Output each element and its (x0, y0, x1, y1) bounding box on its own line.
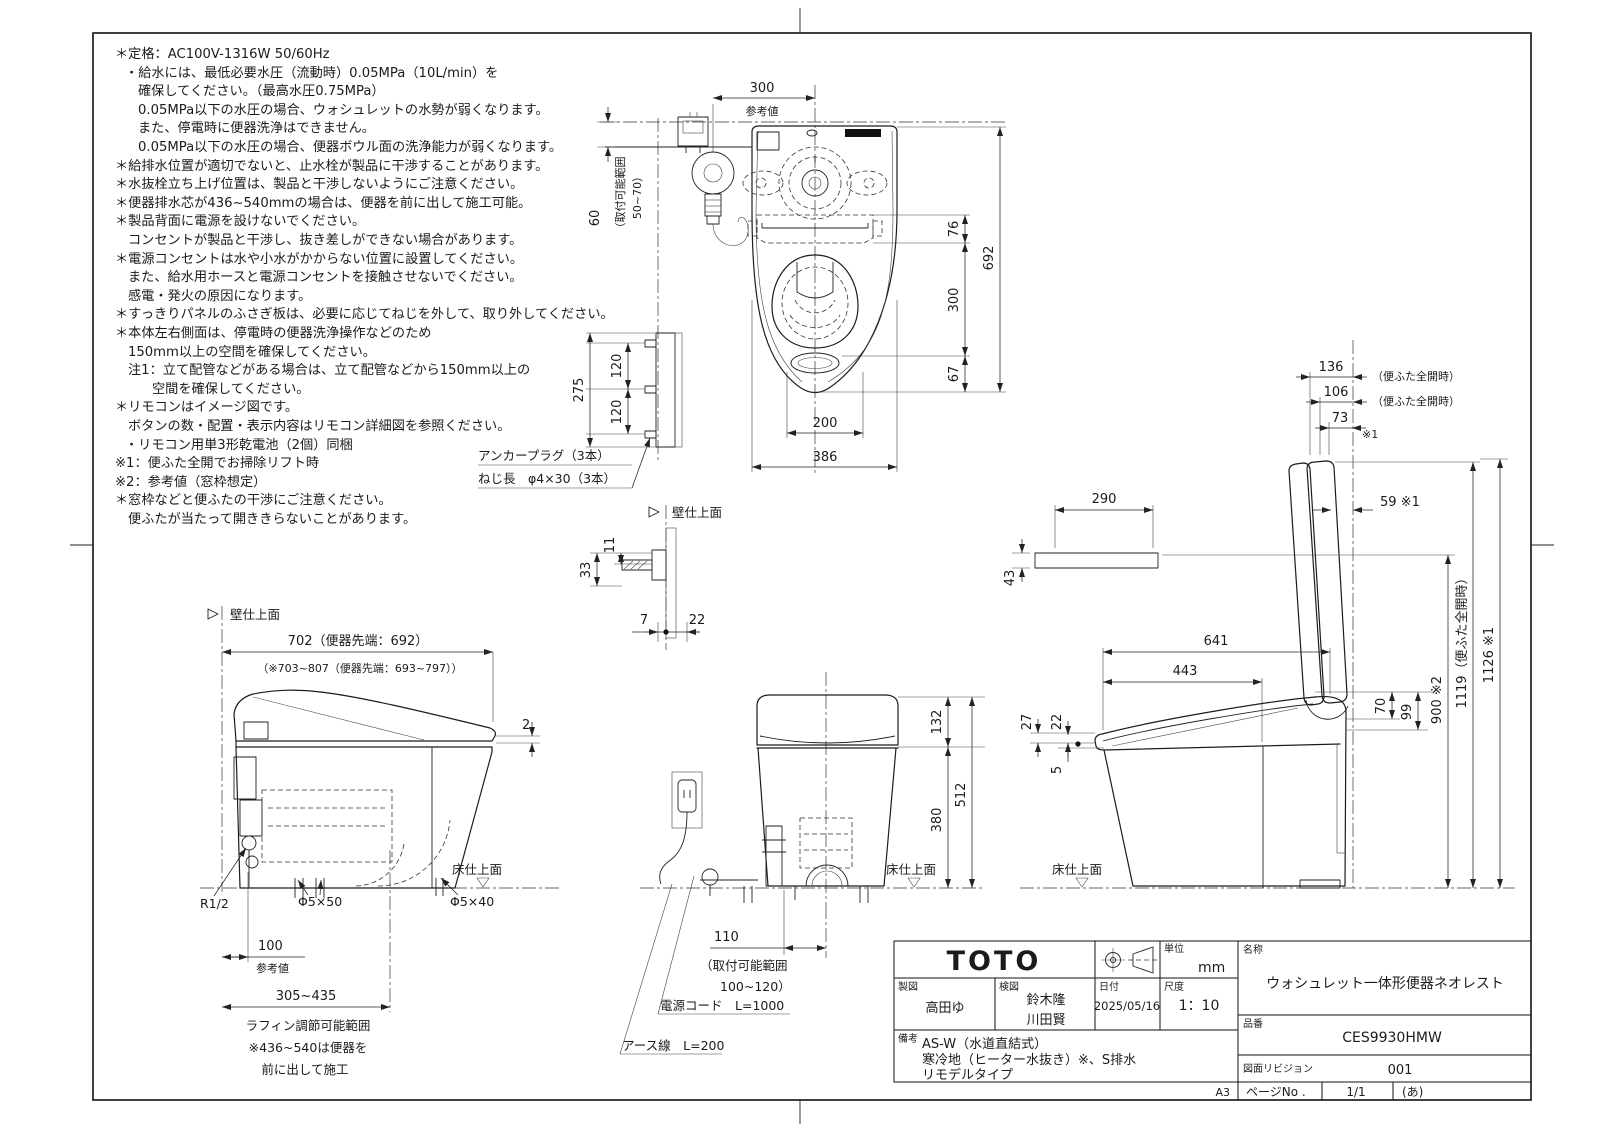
checked-value-1: 鈴木隆 (1026, 993, 1065, 1008)
power-cord-label: 電源コード L=1000 (660, 998, 784, 1013)
dim-386: 386 (813, 450, 838, 465)
dim-200: 200 (813, 416, 838, 431)
anchor-note-2: ねじ長 φ4×30（3本） (478, 471, 616, 486)
checked-value-2: 川田賢 (1026, 1013, 1065, 1028)
note-line: ＊製品背面に電源を設けないでください。 (115, 213, 365, 229)
drawing-sheet: ＊定格：AC100V-1316W 50/60Hz ・給水には、最低必要水圧（流動… (0, 0, 1600, 1131)
dim-100: 100 (258, 939, 283, 954)
part-value: CES9930HMW (1342, 1030, 1442, 1046)
wall-face-label-left: 壁仕上面 (230, 607, 280, 622)
dim-380: 380 (930, 808, 945, 833)
dim-900: 900 ※2 (1430, 676, 1445, 724)
note-line: ＊便器排水芯が436~540mmの場合は、便器を前に出して施工可能。 (115, 194, 531, 211)
wall-face-label: 壁仕上面 (672, 505, 722, 520)
dim-106: 106 (1324, 385, 1349, 400)
dim-73-note: ※1 (1362, 428, 1378, 441)
dim-11: 11 (603, 537, 618, 554)
dim-692: 692 (982, 246, 997, 271)
dim-100-note: 参考値 (256, 961, 289, 975)
note-line: ＊窓枠などと便ふたの干渉にご注意ください。 (115, 491, 392, 508)
dim-60-range-2: 50~70） (631, 171, 644, 219)
note-line: ＊本体左右側面は、停電時の便器洗浄操作などのため (115, 324, 432, 341)
toilet-right-profile (1095, 697, 1346, 888)
remarks-line-1: AS-W（水道直結式） (922, 1037, 1047, 1052)
dim-60: 60 (588, 210, 603, 227)
name-value: ウォシュレット一体形便器ネオレスト (1266, 976, 1504, 992)
note-line: ・リモコン用単3形乾電池（2個）同梱 (125, 437, 353, 453)
dim-110: 110 (714, 930, 739, 945)
note-line: ＊定格：AC100V-1316W 50/60Hz (115, 46, 330, 62)
dim-73: 73 (1332, 411, 1349, 426)
note-line: 空間を確保してください。 (152, 381, 309, 397)
dim-33: 33 (579, 562, 594, 579)
title-block: TOTO 単位 mm 製図 高田ゆ 検図 鈴木隆 川田賢 日付 2025/05/… (894, 941, 1531, 1100)
note-line: 0.05MPa以下の水圧の場合、ウォシュレットの水勢が弱くなります。 (138, 102, 549, 118)
dim-120-b: 120 (610, 400, 625, 425)
page-label: ページNo . (1246, 1085, 1306, 1099)
remarks-line-3: リモデルタイプ (922, 1067, 1013, 1083)
dim-641: 641 (1204, 634, 1229, 649)
note-line: 便ふたが当たって開ききらないことがあります。 (128, 511, 416, 527)
front-view-plumbing (660, 772, 868, 903)
projection-symbol-icon (1101, 947, 1157, 973)
floor-label-front: 床仕上面 (886, 862, 936, 877)
note-line: また、停電時に便器洗浄はできません。 (138, 119, 375, 136)
note-line: 確保してください。（最高水圧0.75MPa） (138, 82, 385, 99)
anchor-note-1: アンカープラグ（3本） (478, 448, 610, 463)
dim-300-note: 参考値 (746, 104, 779, 118)
note-line: ＊すっきりパネルのふさぎ板は、必要に応じてねじを外して、取り外してください。 (115, 306, 614, 322)
right-side-view: 床仕上面 136 （便ふた全開時） 106 （便ふた全開時） 73 ※1 59 … (1003, 340, 1515, 888)
note-line: 150mm以上の空間を確保してください。 (128, 344, 376, 360)
dim-300b: 300 (947, 288, 962, 313)
scale-label: 尺度 (1164, 980, 1184, 993)
note-line: ＊リモコンはイメージ図です。 (115, 399, 298, 415)
note-line: また、給水用ホースと電源コンセントを接触させないでください。 (128, 268, 523, 285)
note-line: ・給水には、最低必要水圧（流動時）0.05MPa（10L/min）を (125, 65, 498, 81)
dim-27: 27 (1020, 714, 1035, 731)
dim-67: 67 (947, 366, 962, 383)
scale-value: 1：10 (1179, 998, 1220, 1014)
toilet-plan-outline (752, 126, 897, 393)
dim-136: 136 (1319, 360, 1344, 375)
dim-702: 702（便器先端：692） (288, 634, 429, 649)
page-value: 1/1 (1346, 1085, 1365, 1099)
r12-label: R1/2 (200, 896, 229, 911)
rough-in-note-3: 前に出して施工 (261, 1062, 348, 1077)
checked-label: 検図 (999, 980, 1019, 993)
dim-702-alt: （※703~807（便器先端：693~797）） (257, 662, 462, 675)
dim-1119: 1119（便ふた全開時） (1454, 571, 1470, 708)
note-line: ※1：便ふた全開でお掃除リフト時 (115, 454, 319, 471)
dim-132: 132 (930, 710, 945, 735)
revision-value: 001 (1388, 1063, 1413, 1078)
note-line: ボタンの数・配置・表示内容はリモコン詳細図を参照ください。 (128, 417, 510, 434)
date-value: 2025/05/16 (1094, 999, 1160, 1013)
dim-300: 300 (750, 81, 775, 96)
earth-wire-label: アース線 L=200 (622, 1038, 724, 1053)
note-line: ※2：参考値（窓枠想定） (115, 473, 266, 490)
toilet-front-outline (757, 695, 898, 886)
revision-label: 図面リビジョン (1243, 1063, 1313, 1075)
dim-5: 5 (1050, 766, 1065, 774)
remote-bracket-detail: 120 120 275 アンカープラグ（3本） ねじ長 φ4×30（3本） (478, 333, 682, 488)
date-label: 日付 (1099, 980, 1119, 993)
drawn-value: 高田ゆ (925, 1000, 964, 1016)
floor-label-right: 床仕上面 (1052, 862, 1102, 877)
shutoff-valve (692, 152, 748, 246)
unit-value: mm (1198, 960, 1225, 976)
wall-section-detail: 壁仕上面 33 11 7 22 (579, 505, 722, 650)
dim-59: 59 ※1 (1380, 495, 1420, 510)
dim-305-435: 305~435 (276, 989, 337, 1004)
note-line: ＊給排水位置が適切でないと、止水栓が製品に干渉することがあります。 (115, 157, 548, 174)
dim-60-range-1: （取付可能範囲 (613, 157, 627, 234)
open-lid (1289, 461, 1348, 719)
note-line: 感電・発火の原因になります。 (128, 287, 311, 304)
dim-110-range-1: （取付可能範囲 (700, 958, 788, 973)
rough-in-note-1: ラフィン調節可能範囲 (246, 1018, 371, 1033)
cad-drawing: ＊定格：AC100V-1316W 50/60Hz ・給水には、最低必要水圧（流動… (0, 0, 1600, 1131)
left-side-view: 壁仕上面 702（便器先端：692） （※703~807（便器先端：693~79… (200, 606, 560, 1077)
dim-70: 70 (1374, 698, 1389, 715)
screw-50-label: Φ5×50 (298, 894, 342, 909)
dim-290: 290 (1092, 492, 1117, 507)
floor-label-left: 床仕上面 (452, 862, 502, 877)
note-line: 注1：立て配管などがある場合は、立て配管などから150mm以上の (128, 362, 530, 378)
dim-275: 275 (572, 378, 587, 403)
dim-1126: 1126 ※1 (1482, 627, 1497, 683)
screw-40-label: Φ5×40 (450, 894, 494, 909)
name-label: 名称 (1243, 943, 1263, 956)
drawn-label: 製図 (898, 980, 918, 993)
remarks-line-2: 寒冷地（ヒーター水抜き）※、S排水 (922, 1052, 1136, 1068)
dim-22r: 22 (1050, 714, 1065, 731)
dim-2: 2 (522, 718, 530, 733)
dim-106-note: （便ふた全開時） (1372, 394, 1460, 408)
toilet-left-profile (234, 690, 495, 888)
dim-99: 99 (1400, 704, 1415, 721)
note-line: 0.05MPa以下の水圧の場合、便器ボウル面の洗浄能力が弱くなります。 (138, 139, 562, 155)
note-line: ＊電源コンセントは水や小水がかからない位置に設置してください。 (115, 251, 523, 267)
dim-76: 76 (947, 221, 962, 238)
note-line: コンセントが製品と干渉し、抜き差しができない場合があります。 (128, 232, 522, 248)
left-view-plumbing (234, 757, 450, 898)
window-sill-detail: 290 43 (1003, 492, 1158, 586)
page-note: (あ) (1402, 1085, 1423, 1099)
paper-size: A3 (1215, 1086, 1230, 1099)
toto-logo: TOTO (947, 946, 1042, 977)
dim-22: 22 (689, 613, 706, 628)
dim-443: 443 (1173, 664, 1198, 679)
dim-110-range-2: 100~120） (720, 979, 791, 994)
dim-136-note: （便ふた全開時） (1372, 369, 1460, 383)
plan-view: 300 参考値 60 （取付可能範囲 50~70） (588, 81, 1008, 474)
remarks-label: 備考 (898, 1032, 918, 1045)
dim-512: 512 (954, 783, 969, 808)
note-line: ＊水抜栓立ち上げ位置は、製品と干渉しないようにご注意ください。 (115, 175, 523, 192)
sheet-frame (70, 8, 1554, 1124)
unit-label: 単位 (1164, 942, 1184, 955)
front-view: 床仕上面 132 380 512 110 （取付可能範囲 100~120） 電源… (620, 672, 985, 1054)
dim-43: 43 (1003, 570, 1018, 587)
rough-in-note-2: ※436~540は便器を (249, 1040, 368, 1055)
dim-120-a: 120 (610, 354, 625, 379)
dim-7: 7 (640, 613, 648, 628)
part-label: 品番 (1243, 1018, 1263, 1030)
